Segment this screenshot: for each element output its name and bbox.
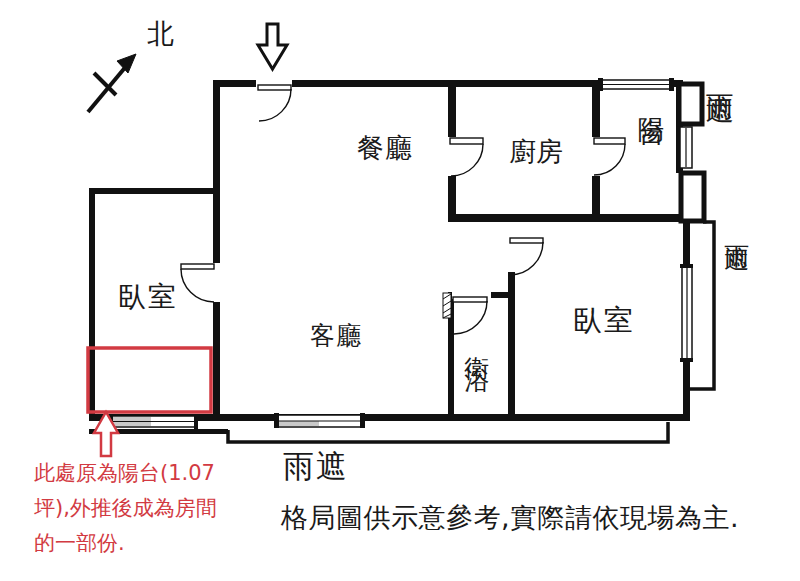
room-label-bedroom-left: 臥室 [118,282,178,311]
north-arrow-icon [88,54,136,112]
canopy-label-bottom: 雨遮 [283,450,349,483]
canopy-box-mid [681,173,704,221]
annotation-highlight-box [88,348,211,412]
room-label-bathroom: 衛浴 [463,336,489,360]
north-label: 北 [147,20,174,48]
window-balcony-top [598,78,674,91]
wall-living-left [213,80,220,421]
door-openings [212,79,601,302]
annotation-note: 此處原為陽台(1.07 坪),外推後成為房間 的一部份. [34,456,217,561]
annotation-note-line1: 此處原為陽台(1.07 [34,456,217,491]
room-label-dining: 餐廳 [357,134,413,162]
door-bathroom [453,297,487,334]
entrance-arrow-icon [258,24,287,69]
door-entrance [258,85,291,121]
window-living-bottom [274,413,365,428]
room-label-kitchen: 廚房 [509,138,563,166]
annotation-note-line2: 坪),外推後成為房間 [34,491,217,526]
windows [109,78,693,429]
floorplan-image: 北 餐廳 廚房 陽台 雨遮 雨遮 臥室 客廳 衛浴 臥室 雨遮 此處原為陽台(1… [0,0,800,581]
disclaimer-text: 格局圖供示意參考,實際請依現場為主. [281,500,739,536]
window-small-right [680,127,692,168]
wall-bedroom-left-side [89,188,95,421]
wall-kitchen-bottom [448,214,685,222]
annotation-graphics [88,348,211,456]
window-bedroom-right [680,264,693,362]
annotation-note-line3: 的一部份. [34,526,217,561]
wall-bedroom-left-top [89,188,215,194]
door-bedroom-left [181,264,214,302]
pipe-shaft-hatch [443,293,451,318]
window-bedroom-left [109,414,198,429]
room-label-bedroom-right: 臥室 [573,305,635,335]
canopy-box-top [679,84,702,124]
doors [181,85,625,334]
room-label-living: 客廳 [310,323,362,349]
